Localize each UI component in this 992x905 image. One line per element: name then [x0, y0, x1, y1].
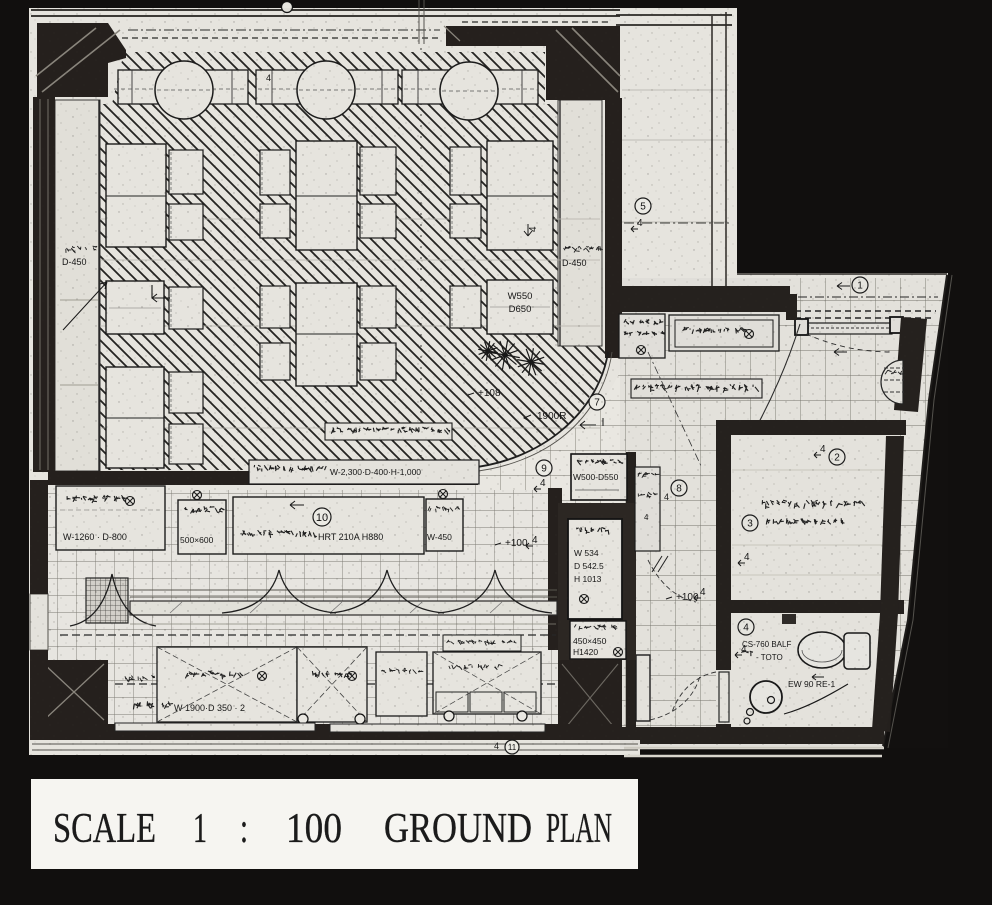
svg-text:GROUND: GROUND: [384, 806, 532, 852]
svg-text::: :: [240, 806, 248, 852]
svg-text:PLAN: PLAN: [546, 806, 612, 852]
svg-text:SCALE: SCALE: [53, 806, 156, 852]
svg-text:100: 100: [286, 806, 342, 852]
svg-text:1: 1: [193, 806, 207, 852]
